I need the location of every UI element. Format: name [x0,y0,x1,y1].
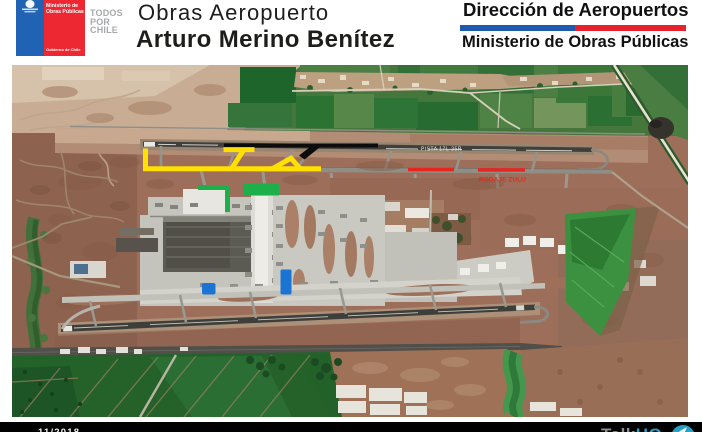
svg-text:PISTA 17L-35R: PISTA 17L-35R [421,147,462,153]
svg-text:RODAJE ZULU: RODAJE ZULU [479,177,526,184]
